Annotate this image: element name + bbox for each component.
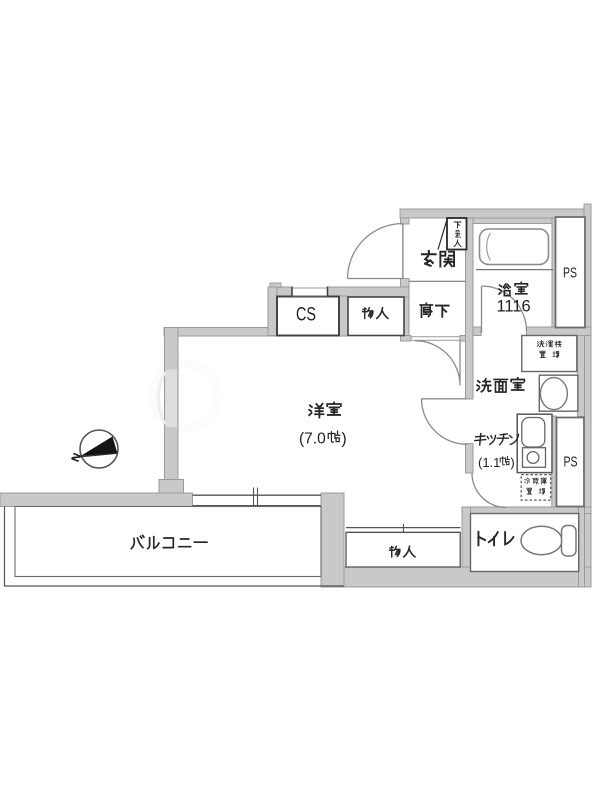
svg-text:CS: CS: [296, 305, 316, 326]
svg-text:(7.0: (7.0: [299, 431, 326, 448]
svg-text:1116: 1116: [496, 298, 530, 316]
svg-text:PS: PS: [563, 265, 577, 282]
svg-text:): ): [510, 455, 514, 470]
svg-text:(1.1: (1.1: [478, 455, 500, 470]
svg-text:): ): [342, 431, 347, 448]
svg-text:PS: PS: [564, 454, 578, 471]
